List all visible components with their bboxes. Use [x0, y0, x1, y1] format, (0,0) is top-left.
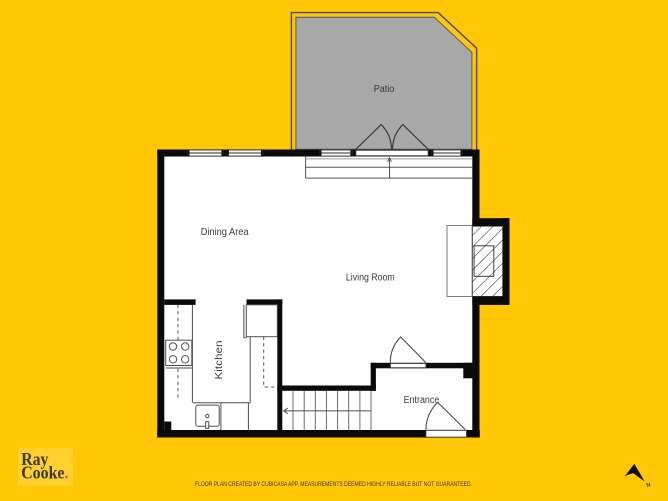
- svg-text:Patio: Patio: [374, 84, 395, 95]
- svg-text:Kitchen: Kitchen: [214, 341, 225, 380]
- svg-text:Cooke.: Cooke.: [21, 463, 68, 483]
- svg-text:Living Room: Living Room: [346, 272, 395, 283]
- svg-text:Dining Area: Dining Area: [201, 227, 249, 238]
- svg-text:Entrance: Entrance: [404, 395, 440, 406]
- svg-text:FLOOR PLAN CREATED BY CUBICASA: FLOOR PLAN CREATED BY CUBICASA APP. MEAS…: [195, 481, 472, 488]
